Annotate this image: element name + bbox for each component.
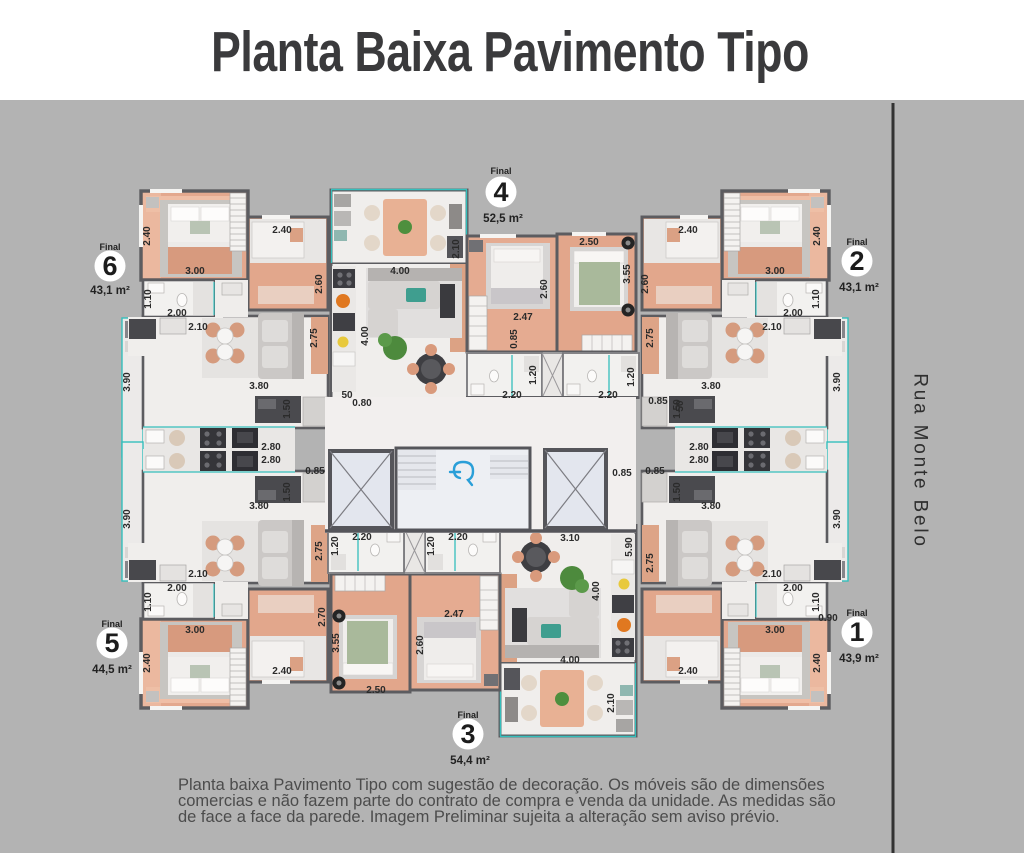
svg-text:2.40: 2.40	[272, 225, 292, 236]
svg-text:2.20: 2.20	[502, 390, 522, 401]
svg-text:1.10: 1.10	[143, 592, 154, 612]
svg-text:1.20: 1.20	[426, 536, 437, 556]
svg-text:4.00: 4.00	[390, 266, 410, 277]
svg-text:3.80: 3.80	[701, 501, 721, 512]
svg-text:2.40: 2.40	[272, 666, 292, 677]
svg-text:Final: Final	[490, 166, 511, 176]
svg-text:2.50: 2.50	[366, 685, 386, 696]
svg-text:43,1 m²: 43,1 m²	[90, 285, 130, 297]
svg-text:0.85: 0.85	[645, 466, 665, 477]
svg-text:2.10: 2.10	[451, 239, 462, 259]
svg-text:52,5 m²: 52,5 m²	[483, 213, 523, 225]
svg-text:3.90: 3.90	[832, 509, 843, 529]
svg-text:3: 3	[460, 719, 475, 749]
svg-text:3.55: 3.55	[622, 264, 633, 284]
svg-text:3.00: 3.00	[185, 625, 205, 636]
svg-text:0.85: 0.85	[612, 468, 632, 479]
svg-text:2.00: 2.00	[167, 583, 187, 594]
svg-text:1.10: 1.10	[811, 289, 822, 309]
svg-text:4.00: 4.00	[591, 581, 602, 601]
svg-text:3.00: 3.00	[765, 625, 785, 636]
svg-text:3.10: 3.10	[560, 533, 580, 544]
svg-text:3.80: 3.80	[249, 501, 269, 512]
svg-text:2.40: 2.40	[678, 225, 698, 236]
svg-text:2.47: 2.47	[444, 609, 464, 620]
svg-text:6: 6	[102, 251, 117, 281]
svg-text:2.75: 2.75	[645, 553, 656, 573]
svg-text:2.20: 2.20	[598, 390, 618, 401]
svg-text:43,1 m²: 43,1 m²	[839, 282, 879, 294]
svg-text:0.85: 0.85	[509, 329, 520, 349]
svg-text:2.60: 2.60	[640, 274, 651, 294]
svg-text:5: 5	[104, 628, 119, 658]
svg-text:4.00: 4.00	[560, 655, 580, 666]
svg-text:2.00: 2.00	[783, 308, 803, 319]
svg-text:2.80: 2.80	[261, 455, 281, 466]
svg-text:2.60: 2.60	[314, 274, 325, 294]
svg-text:1.50: 1.50	[282, 482, 293, 502]
svg-text:3.00: 3.00	[185, 266, 205, 277]
svg-text:2.80: 2.80	[689, 455, 709, 466]
svg-text:2.40: 2.40	[812, 226, 823, 246]
svg-text:2.10: 2.10	[188, 322, 208, 333]
svg-text:1.20: 1.20	[330, 536, 341, 556]
svg-text:1.20: 1.20	[626, 367, 637, 387]
svg-text:4.00: 4.00	[360, 326, 371, 346]
svg-text:2.20: 2.20	[352, 532, 372, 543]
svg-text:3.90: 3.90	[122, 509, 133, 529]
svg-text:3.90: 3.90	[832, 372, 843, 392]
svg-text:1: 1	[849, 617, 864, 647]
svg-text:3.00: 3.00	[765, 266, 785, 277]
svg-text:44,5 m²: 44,5 m²	[92, 664, 132, 676]
svg-text:2.50: 2.50	[579, 237, 599, 248]
svg-text:0.90: 0.90	[818, 613, 838, 624]
svg-text:2.70: 2.70	[317, 607, 328, 627]
svg-text:0.80: 0.80	[352, 398, 372, 409]
svg-text:0.85: 0.85	[648, 396, 668, 407]
svg-text:2.40: 2.40	[142, 226, 153, 246]
svg-text:4: 4	[493, 177, 508, 207]
svg-text:2.10: 2.10	[606, 693, 617, 713]
svg-text:0.85: 0.85	[305, 466, 325, 477]
svg-text:3.55: 3.55	[331, 633, 342, 653]
svg-text:3.90: 3.90	[122, 372, 133, 392]
svg-text:Planta Baixa Pavimento Tipo: Planta Baixa Pavimento Tipo	[211, 20, 809, 83]
svg-text:2.20: 2.20	[448, 532, 468, 543]
svg-text:2.40: 2.40	[142, 653, 153, 673]
svg-text:2.75: 2.75	[645, 328, 656, 348]
svg-text:2.40: 2.40	[678, 666, 698, 677]
svg-text:3.80: 3.80	[249, 381, 269, 392]
svg-text:2.75: 2.75	[314, 541, 325, 561]
svg-text:54,4 m²: 54,4 m²	[450, 755, 490, 767]
svg-text:2: 2	[849, 246, 864, 276]
svg-text:de face a face da parede. Imag: de face a face da parede. Imagem Prelimi…	[178, 808, 780, 826]
svg-text:2.80: 2.80	[689, 442, 709, 453]
svg-text:2.75: 2.75	[309, 328, 320, 348]
svg-text:2.10: 2.10	[762, 322, 782, 333]
svg-text:1.10: 1.10	[811, 592, 822, 612]
svg-text:2.00: 2.00	[783, 583, 803, 594]
svg-text:5.90: 5.90	[624, 537, 635, 557]
svg-text:2.47: 2.47	[513, 312, 533, 323]
svg-text:1.20: 1.20	[528, 365, 539, 385]
svg-text:50: 50	[341, 390, 353, 401]
svg-text:2.60: 2.60	[539, 279, 550, 299]
svg-text:1.10: 1.10	[143, 289, 154, 309]
svg-text:2.80: 2.80	[261, 442, 281, 453]
svg-text:1.50: 1.50	[282, 399, 293, 419]
svg-text:Rua Monte Belo: Rua Monte Belo	[910, 373, 931, 548]
svg-text:3.80: 3.80	[701, 381, 721, 392]
svg-text:1.50: 1.50	[672, 482, 683, 502]
svg-text:43,9 m²: 43,9 m²	[839, 653, 879, 665]
svg-text:50: 50	[675, 400, 686, 412]
svg-text:2.00: 2.00	[167, 308, 187, 319]
svg-text:2.10: 2.10	[762, 569, 782, 580]
svg-text:2.40: 2.40	[812, 653, 823, 673]
svg-text:2.60: 2.60	[415, 635, 426, 655]
svg-text:2.10: 2.10	[188, 569, 208, 580]
